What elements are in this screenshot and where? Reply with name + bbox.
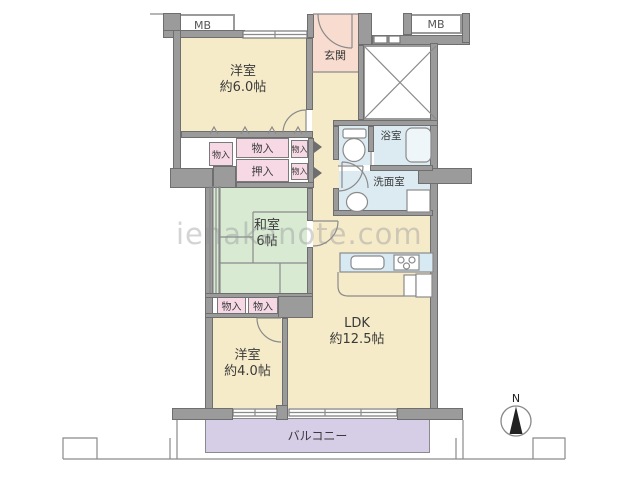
washing-machine-icon <box>407 190 430 212</box>
western4-door <box>257 318 281 342</box>
label-washroom: 洗面室 <box>359 176 419 189</box>
western4-size: 約4.0帖 <box>224 364 271 379</box>
fridge-space <box>404 274 432 297</box>
label-bath: 浴室 <box>374 130 408 143</box>
ldk-name: LDK <box>344 316 370 331</box>
western6-size: 約6.0帖 <box>220 80 267 95</box>
compass-icon <box>501 406 531 436</box>
bathtub-icon <box>406 128 431 162</box>
toilet-icon <box>343 129 366 162</box>
closet-door-marks <box>210 127 302 134</box>
compass-label: N <box>504 392 528 406</box>
bath-name: 浴室 <box>381 130 402 142</box>
entrance-name: 玄関 <box>324 49 346 62</box>
kitchen-counter <box>338 253 433 297</box>
western6-name: 洋室 <box>230 64 256 79</box>
washbasin-icon <box>347 193 368 212</box>
washroom-name: 洗面室 <box>373 176 405 188</box>
stove-icon <box>394 255 419 270</box>
watermark: ienakanote.com <box>176 217 423 251</box>
balcony-railing <box>63 420 565 459</box>
kitchen-sink-icon <box>351 256 384 269</box>
compass-n: N <box>512 392 520 405</box>
floor-plan: バルコニー MB MB 物入 物入 物入 押入 物入 物入 物入 <box>0 0 640 480</box>
label-entrance: 玄関 <box>312 49 358 63</box>
closet-swing-triangles <box>314 141 322 179</box>
western6-door <box>283 110 306 133</box>
label-ldk: LDK 約12.5帖 <box>300 316 414 349</box>
entrance-door <box>318 14 352 48</box>
ldk-size: 約12.5帖 <box>330 332 385 347</box>
western4-name: 洋室 <box>234 348 260 363</box>
label-western-4: 洋室 約4.0帖 <box>213 348 282 381</box>
void-x-mark <box>364 46 436 119</box>
label-western-6: 洋室 約6.0帖 <box>180 64 306 97</box>
